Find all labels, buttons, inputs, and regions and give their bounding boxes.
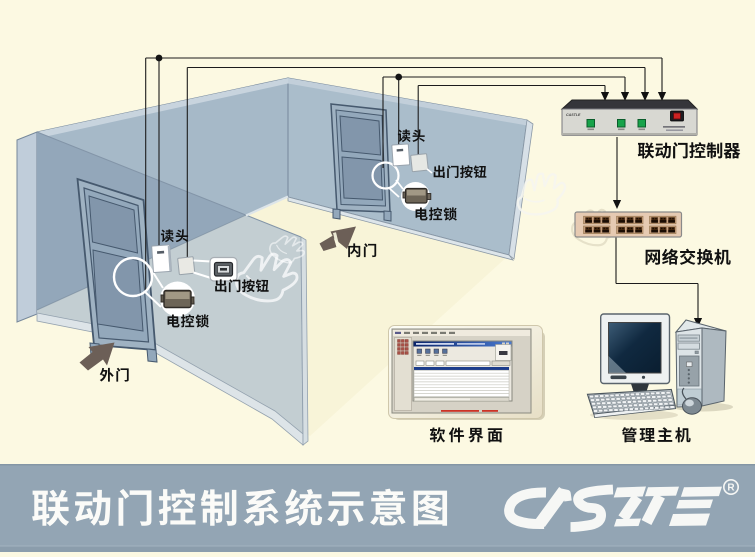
svg-text:CASTLE: CASTLE xyxy=(566,113,581,117)
svg-text:R: R xyxy=(727,483,735,494)
